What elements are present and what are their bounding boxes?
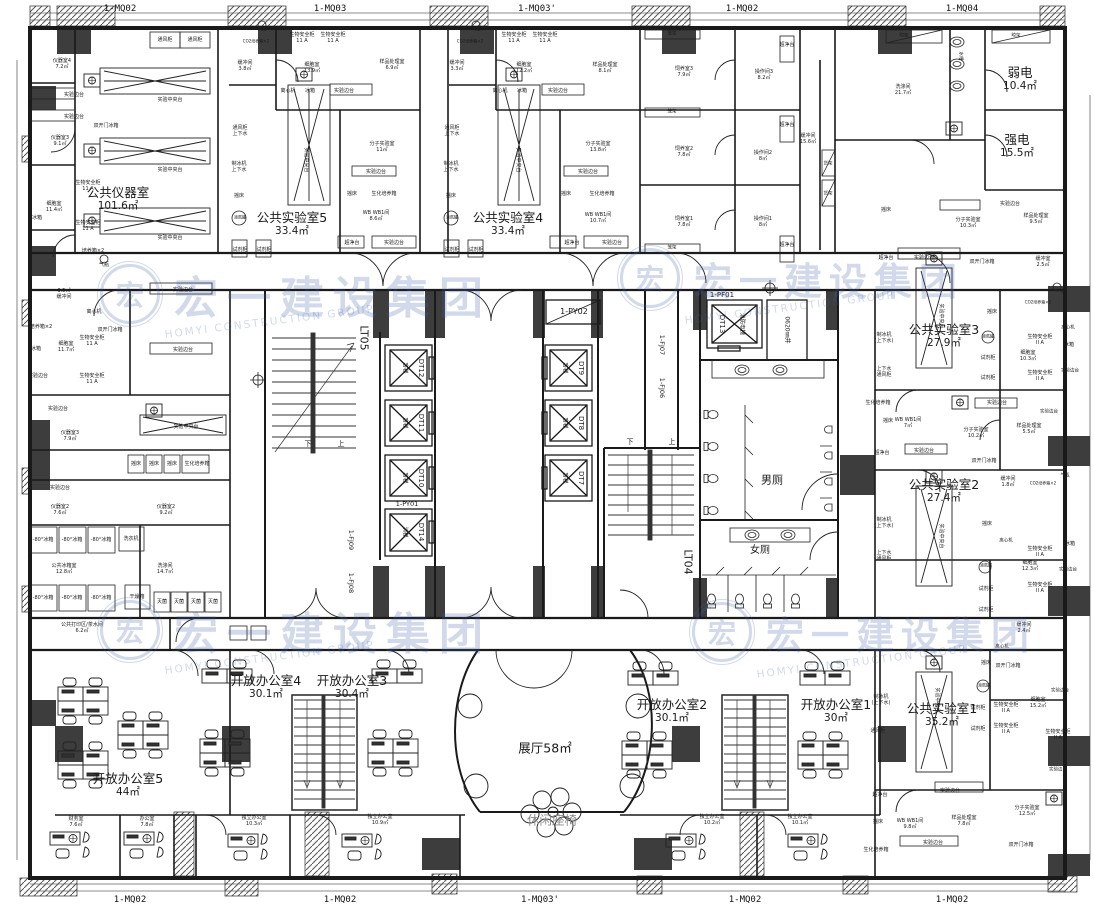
equipment-label: 冰箱 [517, 88, 527, 94]
room-area: 30㎡ [801, 712, 871, 725]
equipment-label: 试剂柜 [978, 586, 993, 592]
shaft-label-py02: 1-PY02 [560, 307, 588, 317]
equipment-label: 摇床 [981, 660, 991, 666]
equipment-label: 离心机 [1061, 325, 1075, 330]
equipment-label: 样品处理室 7.8㎡ [951, 815, 976, 827]
equipment-label: 生物安全柜 11 A [75, 220, 100, 232]
equipment-label: 实验中央台 [157, 235, 182, 241]
equipment-label: 实验边台 [64, 114, 84, 120]
equipment-label: 货架 [824, 191, 833, 196]
equipment-label: 离心机 [86, 309, 101, 315]
elevator-label: DT10 [417, 469, 425, 488]
equipment-label: 冰箱 [1065, 541, 1075, 547]
equipment-label: 干燥箱 [129, 594, 144, 600]
equipment-label: 生物安全柜 11 A [289, 32, 314, 44]
room-name: 开放办公室4 [231, 673, 301, 688]
equipment-label: 气瓶 [1058, 289, 1067, 294]
stair-offices-left [292, 695, 357, 810]
equipment-label: 分子实验室 12.5㎡ [1014, 805, 1039, 817]
equipment-label: 货架 [824, 161, 833, 166]
equipment-label: 离心机 [280, 88, 295, 94]
equipment-label: 实验边台 [1059, 567, 1077, 572]
equipment-label: 实验边台 [173, 347, 193, 353]
equipment-label: 试剂柜 [970, 726, 985, 732]
equipment-label: 细胞室 12.2㎡ [516, 62, 532, 74]
equipment-label: 制冰机 上下水 [443, 161, 458, 173]
equipment-label: 试剂柜 [256, 247, 271, 253]
equipment-label: -80°冰箱 [33, 595, 54, 601]
room-name: 公共实验室5 [257, 210, 327, 225]
equipment-label: 办公室 7.8㎡ [139, 816, 154, 828]
equipment-label: 气瓶 [472, 27, 481, 32]
equipment-label: 气瓶 [258, 27, 267, 32]
elevator-label: 客梯 [401, 362, 408, 373]
equipment-label: WB WB1间 10.7㎡ [585, 212, 612, 224]
equipment-label: 双开门冰箱 [969, 259, 994, 265]
equipment-label: 生物安全柜 11 A [532, 32, 557, 44]
elevator-label: DT8 [577, 416, 585, 430]
equipment-label: 实验边台 [64, 92, 84, 98]
elevator-label: 客梯 [561, 472, 568, 483]
equipment-label: 液氮罐 [978, 684, 990, 689]
equipment-label: 通风柜 [157, 37, 172, 43]
equipment-label: 试剂柜 [468, 247, 483, 253]
equipment-label: 操作间1 8㎡ [754, 216, 772, 228]
equipment-label: 摇床 [149, 461, 159, 467]
equipment-label: 双开门冰箱 [97, 327, 122, 333]
elevator-label: DT12 [417, 359, 425, 378]
equipment-label: WB WB1间 9.8㎡ [897, 818, 924, 830]
equipment-label: 液氮罐 [982, 335, 994, 340]
equipment-label: 冰箱 [305, 88, 315, 94]
shaft-label-fj07: 1-FJ07 [657, 335, 665, 355]
equipment-label: 生物安全柜 11 A [320, 32, 345, 44]
equipment-label: 摇床 [446, 193, 456, 199]
mullion-label: 1-MQ02 [114, 895, 147, 905]
equipment-label: -80°冰箱 [33, 537, 54, 543]
equipment-label: 气瓶 [99, 262, 109, 268]
equipment-label: CO2培养箱×2 [243, 40, 269, 45]
equipment-label: 操作间3 8.2㎡ [755, 69, 773, 81]
equipment-label: 灭菌 [157, 599, 167, 605]
equipment-label: 缓冲间 3.3㎡ [449, 60, 464, 72]
equipment-label: 离心机 [999, 538, 1013, 543]
mullion-label: 1-MQ03 [314, 4, 347, 14]
equipment-label: 通风柜 [870, 728, 885, 734]
equipment-label: 分子实验室 11㎡ [369, 141, 394, 153]
stair-lt05 [272, 333, 356, 453]
equipment-label: 仪器室2 9.2㎡ [157, 504, 175, 516]
equipment-label: CO2培养箱×2 [1030, 482, 1056, 487]
mullion-label: 1-MQ02 [729, 895, 762, 905]
room-name: 公共实验室3 [909, 322, 979, 337]
equipment-label: 缓冲间 2.4㎡ [1016, 622, 1031, 634]
equipment-label: 冰箱 [1064, 342, 1074, 348]
equipment-label: WB WB1间 7㎡ [895, 417, 922, 429]
stair-up-label: 上 [338, 440, 345, 448]
room-area: 44㎡ [93, 786, 163, 799]
stair-up-label: 上 [669, 438, 676, 446]
mullion-label: 1-MQ02 [104, 4, 137, 14]
stair-down-label: 下 [305, 440, 312, 448]
mullion-label: 1-MQ02 [726, 4, 759, 14]
room-name: 展厅58㎡ [518, 741, 571, 756]
elevator-label: DT13 [718, 315, 726, 334]
equipment-label: 实验边台 [1000, 201, 1020, 207]
equipment-label: 生物安全柜 II A [993, 723, 1018, 735]
elevator-label: DT7 [577, 471, 585, 485]
equipment-label: 冰箱 [31, 346, 41, 352]
equipment-label: 样品处理室 6.9㎡ [379, 59, 404, 71]
equipment-label: -80°冰箱 [91, 537, 112, 543]
equipment-label: 摇床 [234, 193, 244, 199]
equipment-label: 实验边台 [48, 406, 68, 412]
equipment-label: 试剂柜 [980, 355, 995, 361]
equipment-label: 样品处理室 8.1㎡ [592, 62, 617, 74]
equipment-label: 生化培养箱 [865, 400, 890, 406]
room-area: 10.4㎡ [1003, 80, 1037, 93]
mullion-label: 1-MQ02 [936, 895, 969, 905]
equipment-label: 细胞室 13.9㎡ [304, 62, 320, 74]
equipment-label: 操作间2 8㎡ [754, 150, 772, 162]
equipment-label: 上下水 通风柜 [876, 366, 891, 378]
equipment-label: 生物安全柜 II A [1027, 334, 1052, 346]
elevator-label: DT14 [417, 523, 425, 542]
equipment-label: 细胞室 11.4㎡ [46, 201, 62, 213]
shaft-label-pf01: 1-PF01 [710, 291, 734, 299]
elevator-label: 客梯 [561, 417, 568, 428]
equipment-label: 双开门冰箱 [971, 458, 996, 464]
equipment-label: 独立办公室 10.1㎡ [787, 814, 812, 826]
equipment-label: 生物安全柜 11 A [79, 373, 104, 385]
room-area: 27.4㎡ [909, 492, 979, 505]
equipment-label: 离心机 [492, 88, 507, 94]
room-name: 公共实验室4 [473, 210, 543, 225]
equipment-label: 生化培养箱 [371, 191, 396, 197]
equipment-label: 饲养室1 7.8㎡ [675, 216, 693, 228]
equipment-label: 制冰机 上下水 [231, 161, 246, 173]
room-name: 公共实验室2 [909, 477, 979, 492]
equipment-label: 生物安全柜 11 A [501, 32, 526, 44]
equipment-label: 实验中央台 [515, 147, 521, 172]
equipment-label: 缓冲间 15.6㎡ [800, 133, 816, 145]
room-name: 开放办公室1 [801, 697, 871, 712]
elevator-label: 消梯 [401, 526, 408, 537]
equipment-label: 实验边台 [923, 840, 943, 846]
equipment-label: 缓冲间 3.8㎡ [237, 60, 252, 72]
equipment-label: 超净台 [878, 255, 893, 261]
equipment-label: 实验边台 [914, 448, 934, 454]
equipment-label: 冰箱 [32, 215, 42, 221]
equipment-label: 公共打印区/茶水间 6.2㎡ [61, 622, 103, 634]
equipment-label: 实验边台 [384, 240, 404, 246]
room-area: 30.1㎡ [637, 712, 707, 725]
mullion-label: 1-MQ03' [518, 4, 556, 14]
equipment-label: 摇床 [883, 418, 893, 424]
equipment-label: 超净台 [874, 450, 889, 456]
equipment-label: 样品处理室 5.5㎡ [1016, 423, 1041, 435]
equipment-label: 试剂柜 [232, 247, 247, 253]
equipment-label: 样品处理室 9.5㎡ [1023, 213, 1048, 225]
equipment-label: 公共冰箱室 12.8㎡ [51, 563, 76, 575]
mullion-label: 1-MQ02 [324, 895, 357, 905]
equipment-label: -80°冰箱 [62, 537, 83, 543]
room-name: 开放办公室2 [637, 697, 707, 712]
equipment-label: 摇床 [561, 191, 571, 197]
equipment-label: 笼架 [668, 31, 677, 36]
elevator-label: 消防电梯 [738, 313, 745, 335]
elevator-label: DT9 [577, 361, 585, 375]
equipment-label: 实验中央台 [934, 687, 940, 712]
elevator-label: 客梯 [561, 362, 568, 373]
equipment-label: CO2培养箱×2 [457, 40, 483, 45]
equipment-label: 洗涤间 21.7㎡ [895, 84, 911, 96]
equipment-label: 制冰机 (上下水) [872, 694, 891, 706]
equipment-label: 实验中央台 [173, 424, 198, 430]
equipment-label: CO2培养箱×2 [1025, 301, 1051, 306]
equipment-label: 独立办公室 10.3㎡ [241, 815, 266, 827]
equipment-label: 缓冲室 2.5㎡ [1035, 256, 1050, 268]
equipment-label: 摇床 [131, 461, 141, 467]
equipment-label: -80°冰箱 [62, 595, 83, 601]
equipment-label: 实验边台 [1061, 368, 1079, 373]
equipment-label: 摇床 [873, 819, 883, 825]
equipment-label: 水槽 [957, 52, 962, 61]
equipment-label: 实验边台 [173, 287, 193, 293]
room-area: 33.4㎡ [257, 225, 327, 238]
equipment-label: 3.5㎡ 缓冲间 [56, 288, 71, 300]
equipment-label: 实验中央台 [303, 147, 309, 172]
shaft-label-fj09: 1-FJ09 [346, 530, 354, 550]
shaft-label-fj08: 1-FJ08 [346, 573, 354, 593]
office-desks [50, 660, 850, 860]
equipment-label: 细胞室 15.2㎡ [1030, 697, 1046, 709]
equipment-label: 液氮罐 [234, 216, 246, 221]
equipment-label: 生化培养箱 [589, 191, 614, 197]
equipment-label: 液氮罐 [446, 216, 458, 221]
elevator-label: DT11 [417, 414, 425, 433]
equipment-label: 实验中央台 [938, 523, 944, 548]
room-label: 公共实验室5 33.4㎡ [257, 210, 327, 238]
equipment-label: 分子实验室 13.8㎡ [585, 141, 610, 153]
floor-plan: 1-MQ021-MQ031-MQ03'1-MQ021-MQ04 1-MQ021-… [0, 0, 1094, 910]
equipment-label: 缓冲间 1.8㎡ [1000, 476, 1015, 488]
equipment-label: 实验边台 [28, 373, 48, 379]
equipment-label: 生物安全柜 II A [1027, 370, 1052, 382]
room-label: 强电 15.5㎡ [1000, 132, 1034, 160]
equipment-label: 独立办公室 10.2㎡ [699, 814, 724, 826]
equipment-label: 摇床 [347, 191, 357, 197]
equipment-label: 细胞室 10.3㎡ [1020, 350, 1036, 362]
equipment-label: 实验边台 [914, 255, 934, 261]
equipment-label: 试剂柜 [970, 705, 985, 711]
equipment-label: 细胞室 11.7㎡ [58, 341, 74, 353]
equipment-label: 笼架 [668, 245, 677, 250]
room-name: 公共实验室1 [907, 701, 977, 716]
equipment-label: 双开门冰箱 [93, 123, 118, 129]
elevator-label: 客梯 [401, 472, 408, 483]
equipment-label: 分子实验室 10.2㎡ [963, 427, 988, 439]
equipment-label: 实验边台 [50, 485, 70, 491]
equipment-label: 细胞室 12.3㎡ [1022, 560, 1038, 572]
room-name: 强电 [1000, 132, 1034, 147]
room-area: 27.9㎡ [909, 337, 979, 350]
room-label: 开放办公室2 30.1㎡ [637, 697, 707, 725]
equipment-label: 培养箱×2 [82, 248, 104, 254]
equipment-label: 液氮罐 [980, 564, 992, 569]
room-name: 开放办公室3 [317, 673, 387, 688]
elevator-label: 客梯 [401, 417, 408, 428]
equipment-label: WB WB1间 8.6㎡ [363, 210, 390, 222]
room-label: 展厅58㎡ [518, 741, 571, 756]
stair-label-lt04: LT04 [681, 549, 694, 574]
room-area: 30.4㎡ [317, 688, 387, 701]
equipment-label: 实验边台 [987, 400, 1007, 406]
equipment-label: 实验边台 [940, 788, 960, 794]
equipment-label: 摇床 [987, 309, 997, 315]
room-name: 休闲座椅 [527, 813, 577, 828]
room-label: 弱电 10.4㎡ [1003, 65, 1037, 93]
equipment-label: 生物安全柜 II A [1027, 546, 1052, 558]
equipment-label: 实验中央台 [157, 167, 182, 173]
equipment-label: 生物安全柜 II A [1027, 582, 1052, 594]
equipment-label: 实验边台 [366, 169, 386, 175]
equipment-label: 晾架 [900, 33, 909, 38]
equipment-label: 摇床 [167, 461, 177, 467]
equipment-label: 超净台 [872, 792, 887, 798]
mullion-label: 1-MQ04 [946, 4, 979, 14]
equipment-label: 摇床 [982, 521, 992, 527]
room-label: 开放办公室5 44㎡ [93, 771, 163, 799]
equipment-label: 实验边台 [1049, 767, 1067, 772]
equipment-label: 晾架 [1012, 33, 1021, 38]
equipment-label: 超净台 [779, 242, 794, 248]
equipment-label: 饲养室2 7.8㎡ [675, 146, 693, 158]
equipment-label: 摇床 [881, 207, 891, 213]
equipment-label: 通风柜 上下水 [232, 125, 247, 137]
equipment-label: 饲养室3 7.9㎡ [675, 66, 693, 78]
room-label: 公共实验室2 27.4㎡ [909, 477, 979, 505]
stair-offices-right [722, 695, 788, 810]
room-label: 休闲座椅 [527, 813, 577, 828]
equipment-label: 独立办公室 10.9㎡ [367, 814, 392, 826]
equipment-label: 生化培养箱 [863, 847, 888, 853]
room-label: 公共实验室4 33.4㎡ [473, 210, 543, 238]
mullion-label: 1-MQ03' [521, 895, 559, 905]
vent-shaft-label: 0620㎜井 [783, 316, 790, 343]
room-label: 公共实验室1 35.2㎡ [907, 701, 977, 729]
equipment-label: 生物安全柜 II A [1045, 729, 1070, 741]
equipment-label: 双开门冰箱 [995, 663, 1020, 669]
room-area: 15.5㎡ [1000, 147, 1034, 160]
equipment-label: 分子实验室 10.3㎡ [955, 217, 980, 229]
equipment-label: 上下水 通风柜 [876, 550, 891, 562]
room-area: 33.4㎡ [473, 225, 543, 238]
equipment-label: 实验边台 [578, 169, 598, 175]
equipment-label: 笼架 [668, 109, 677, 114]
equipment-label: 实验边台 [334, 88, 354, 94]
equipment-label: 试剂柜 [444, 247, 459, 253]
equipment-label: 实验中央台 [157, 97, 182, 103]
shaft-label-fj06: 1-FJ06 [657, 378, 665, 398]
equipment-label: 实验中央台 [938, 303, 944, 328]
room-label: 开放办公室4 30.1㎡ [231, 673, 301, 701]
equipment-label: 灭菌 [191, 599, 201, 605]
equipment-label: 通风柜 [187, 37, 202, 43]
womens-toilet-label: 女厕 [750, 545, 770, 557]
equipment-label: 灭菌 [174, 599, 184, 605]
equipment-label: 制冰机 (上下水) [875, 332, 894, 344]
equipment-label: 生物安全柜 11 A [75, 180, 100, 192]
equipment-label: 财务室 7.6㎡ [68, 816, 83, 828]
equipment-label: 实验边台 [1051, 688, 1069, 693]
equipment-label: 仪器室3 9.1㎡ [51, 135, 69, 147]
equipment-label: 仪器室2 7.6㎡ [51, 504, 69, 516]
stair-label-lt05: LT05 [357, 325, 370, 350]
equipment-label: 超净台 [779, 42, 794, 48]
equipment-label: -80°冰箱 [91, 595, 112, 601]
room-label: 开放办公室1 30㎡ [801, 697, 871, 725]
room-area: 30.1㎡ [231, 688, 301, 701]
room-area: 101.6㎡ [87, 200, 150, 213]
equipment-label: 仪器室3 7.9㎡ [61, 430, 79, 442]
stair-down-label: 下 [627, 438, 634, 446]
equipment-label: 超净台 [344, 240, 359, 246]
elevator-shafts [385, 300, 807, 556]
room-area: 35.2㎡ [907, 716, 977, 729]
equipment-label: 离心机 [995, 644, 1009, 649]
equipment-label: 洗涤间 14.7㎡ [157, 563, 173, 575]
equipment-label: 生物安全柜 11 A [79, 335, 104, 347]
equipment-label: 实验边台 [1040, 409, 1058, 414]
equipment-label: 洗衣机 [123, 536, 138, 542]
shaft-label-py01: 1-PY01 [396, 501, 419, 509]
equipment-label: 超净台 [779, 122, 794, 128]
equipment-label: 试剂柜 [980, 375, 995, 381]
equipment-label: 双开门冰箱 [1008, 842, 1033, 848]
room-name: 弱电 [1003, 65, 1037, 80]
equipment-label: 培养箱×2 [30, 324, 52, 330]
room-name: 开放办公室5 [93, 771, 163, 786]
equipment-label: 生物安全柜 II A [993, 702, 1018, 714]
equipment-label: 实验边台 [548, 88, 568, 94]
room-label: 开放办公室3 30.4㎡ [317, 673, 387, 701]
equipment-label: 气瓶 [1061, 473, 1070, 478]
equipment-label: 试剂柜 [978, 607, 993, 613]
equipment-label: 灭菌 [208, 599, 218, 605]
equipment-label: 仪器室4 7.2㎡ [53, 58, 71, 70]
equipment-label: 制冰机 (上下水) [875, 517, 894, 529]
equipment-label: 实验边台 [602, 240, 622, 246]
room-label: 公共实验室3 27.9㎡ [909, 322, 979, 350]
plan-linework [0, 0, 1094, 910]
mens-toilet-label: 男厕 [761, 473, 783, 486]
equipment-label: 超净台 [564, 240, 579, 246]
equipment-label: 通风柜 上下水 [444, 125, 459, 137]
stair-lt04 [608, 450, 694, 540]
equipment-label: 生化培养箱 [184, 461, 209, 467]
